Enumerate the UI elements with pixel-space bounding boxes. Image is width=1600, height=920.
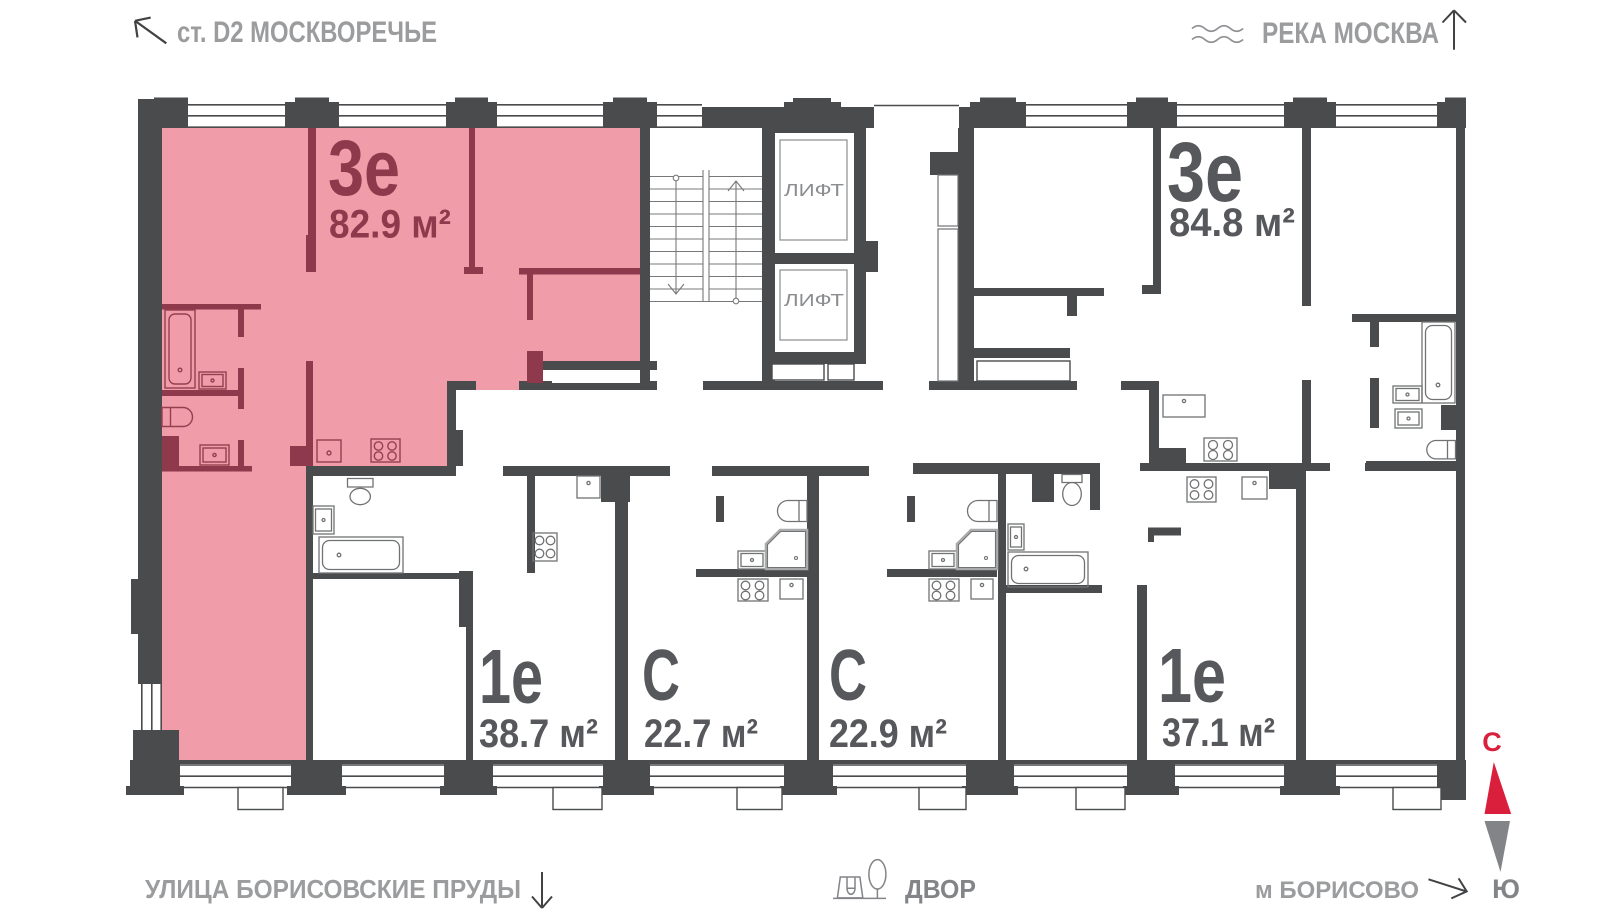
- svg-text:ЛИФТ: ЛИФТ: [784, 290, 844, 310]
- svg-text:1е: 1е: [1158, 633, 1226, 719]
- svg-text:22.9 м²: 22.9 м²: [829, 712, 947, 756]
- svg-text:С: С: [1482, 727, 1502, 757]
- svg-text:38.7 м²: 38.7 м²: [479, 712, 598, 756]
- svg-text:С: С: [829, 636, 867, 716]
- svg-text:82.9 м²: 82.9 м²: [329, 203, 451, 247]
- svg-text:ДВОР: ДВОР: [905, 874, 976, 904]
- svg-text:84.8 м²: 84.8 м²: [1169, 201, 1295, 245]
- svg-text:22.7 м²: 22.7 м²: [644, 712, 758, 756]
- svg-text:ст. D2 МОСКВОРЕЧЬЕ: ст. D2 МОСКВОРЕЧЬЕ: [177, 16, 437, 49]
- svg-text:Ю: Ю: [1492, 874, 1520, 904]
- svg-text:ЛИФТ: ЛИФТ: [784, 180, 844, 200]
- svg-text:УЛИЦА БОРИСОВСКИЕ ПРУДЫ: УЛИЦА БОРИСОВСКИЕ ПРУДЫ: [145, 874, 521, 904]
- svg-text:м БОРИСОВО: м БОРИСОВО: [1255, 877, 1419, 904]
- svg-text:С: С: [642, 636, 680, 716]
- svg-text:3е: 3е: [328, 123, 400, 212]
- svg-text:37.1 м²: 37.1 м²: [1162, 711, 1275, 755]
- svg-text:РЕКА МОСКВА: РЕКА МОСКВА: [1262, 17, 1439, 50]
- svg-text:1е: 1е: [479, 634, 543, 720]
